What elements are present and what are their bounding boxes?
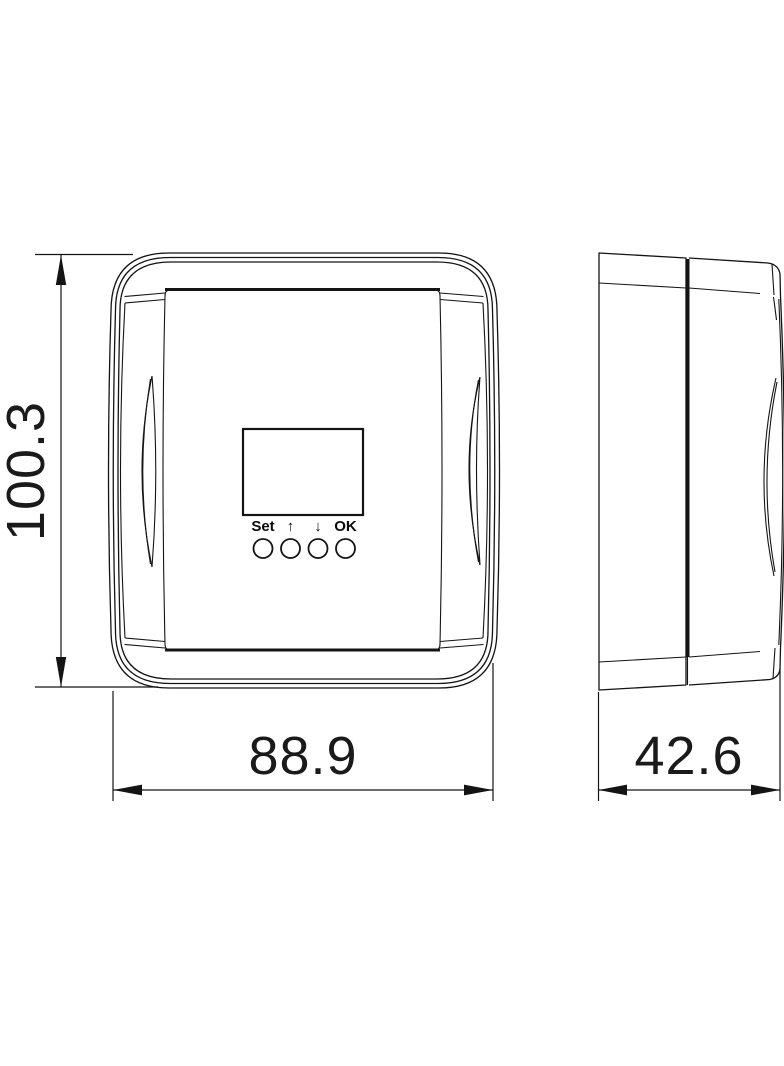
- width-value: 88.9: [248, 726, 357, 786]
- front-view: Set ↑ ↓ OK: [109, 253, 500, 688]
- front-panel-outline: [163, 290, 442, 650]
- width-arrow-right: [464, 785, 493, 796]
- side-front-bottom-edge: [689, 680, 770, 686]
- side-back-top-band: [599, 283, 686, 288]
- ok-button: [336, 539, 355, 558]
- up-button: [281, 539, 300, 558]
- button-labels: Set ↑ ↓ OK: [251, 518, 357, 535]
- depth-arrow-left: [599, 785, 628, 796]
- side-grip-crescent: [764, 378, 776, 576]
- side-back-bottom-band: [599, 657, 686, 662]
- technical-drawing: Set ↑ ↓ OK: [0, 0, 784, 1066]
- button-circles: [254, 539, 356, 558]
- lcd-display: [243, 429, 363, 515]
- side-front-bottom-band: [689, 652, 760, 658]
- dimension-height: 100.3: [0, 255, 158, 688]
- left-grip-strip: [121, 293, 166, 648]
- side-bottom-cap: [770, 648, 781, 680]
- right-grip-strip: [440, 293, 488, 648]
- front-outline-inner: [118, 262, 490, 679]
- depth-arrow-right: [751, 785, 780, 796]
- ok-button-label: OK: [334, 518, 357, 535]
- up-arrow-icon: ↑: [287, 518, 295, 535]
- side-front-top-band: [689, 288, 760, 294]
- down-arrow-icon: ↓: [314, 518, 322, 535]
- width-arrow-left: [113, 785, 142, 796]
- depth-value: 42.6: [634, 726, 743, 786]
- height-value: 100.3: [0, 401, 56, 541]
- side-front-top-edge: [689, 258, 768, 263]
- set-button: [254, 539, 273, 558]
- height-arrow-down: [56, 657, 66, 687]
- down-button: [309, 539, 328, 558]
- set-button-label: Set: [251, 518, 274, 535]
- front-outline-middle: [113, 258, 495, 684]
- height-arrow-up: [56, 255, 66, 285]
- side-back-box: [599, 253, 686, 690]
- drawing-canvas: Set ↑ ↓ OK: [0, 0, 784, 1066]
- side-view: [599, 253, 784, 690]
